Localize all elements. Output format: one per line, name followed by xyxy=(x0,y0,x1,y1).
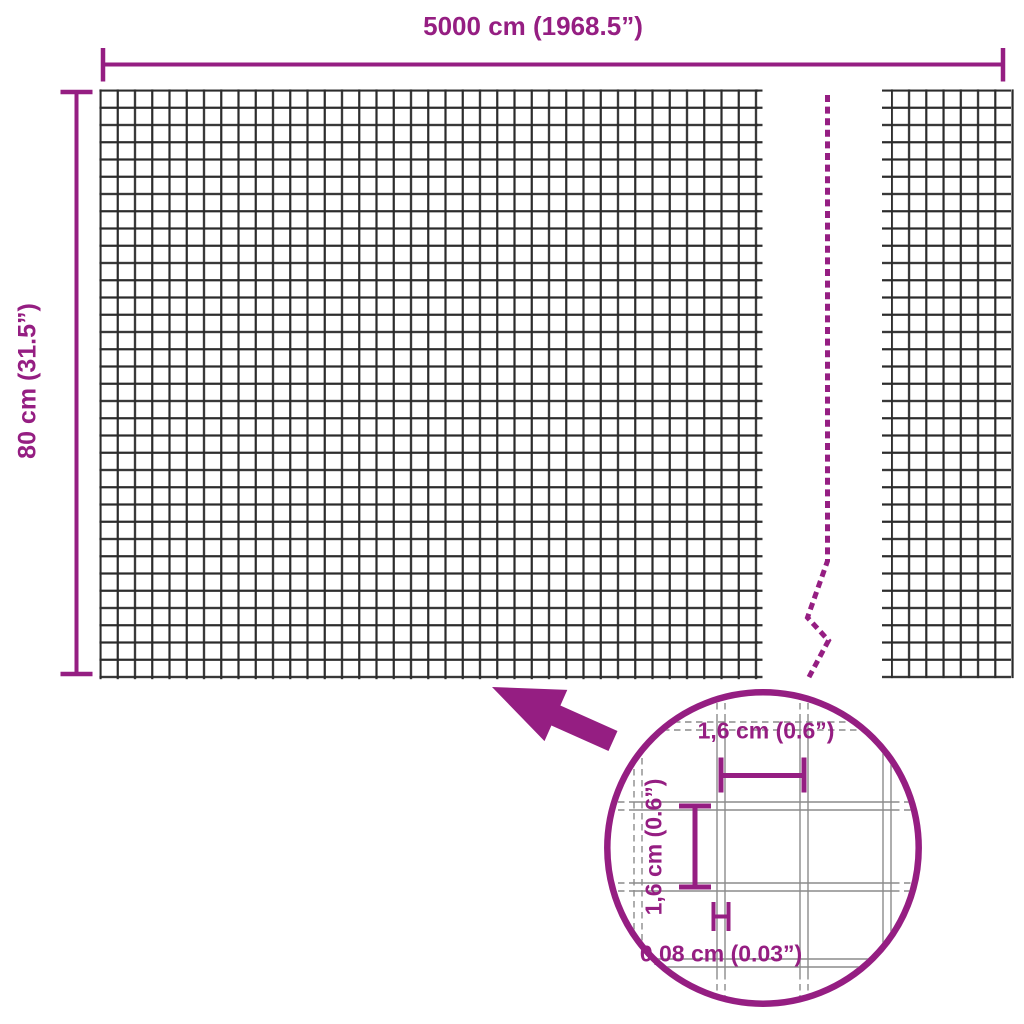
mesh-wire-overhang xyxy=(756,89,763,679)
mesh-panel-main xyxy=(99,89,762,679)
break-line xyxy=(808,95,829,678)
width-dimension-line xyxy=(103,48,1003,82)
mesh-panel-right xyxy=(882,89,1014,679)
overall-height-label: 80 cm (31.5”) xyxy=(16,303,41,459)
wire-thickness-label: 0,08 cm (0.03”) xyxy=(640,943,802,966)
cell-width-label: 1,6 cm (0.6”) xyxy=(698,720,835,743)
product-dimension-diagram: 5000 cm (1968.5”) 80 cm (31.5”) 1,6 cm (… xyxy=(0,0,1024,1024)
cell-height-label: 1,6 cm (0.6”) xyxy=(643,779,666,916)
diagram-graphics xyxy=(0,0,1024,1024)
overall-width-label: 5000 cm (1968.5”) xyxy=(423,13,643,39)
zoom-arrow-icon xyxy=(492,687,618,751)
height-dimension-line xyxy=(61,92,93,674)
